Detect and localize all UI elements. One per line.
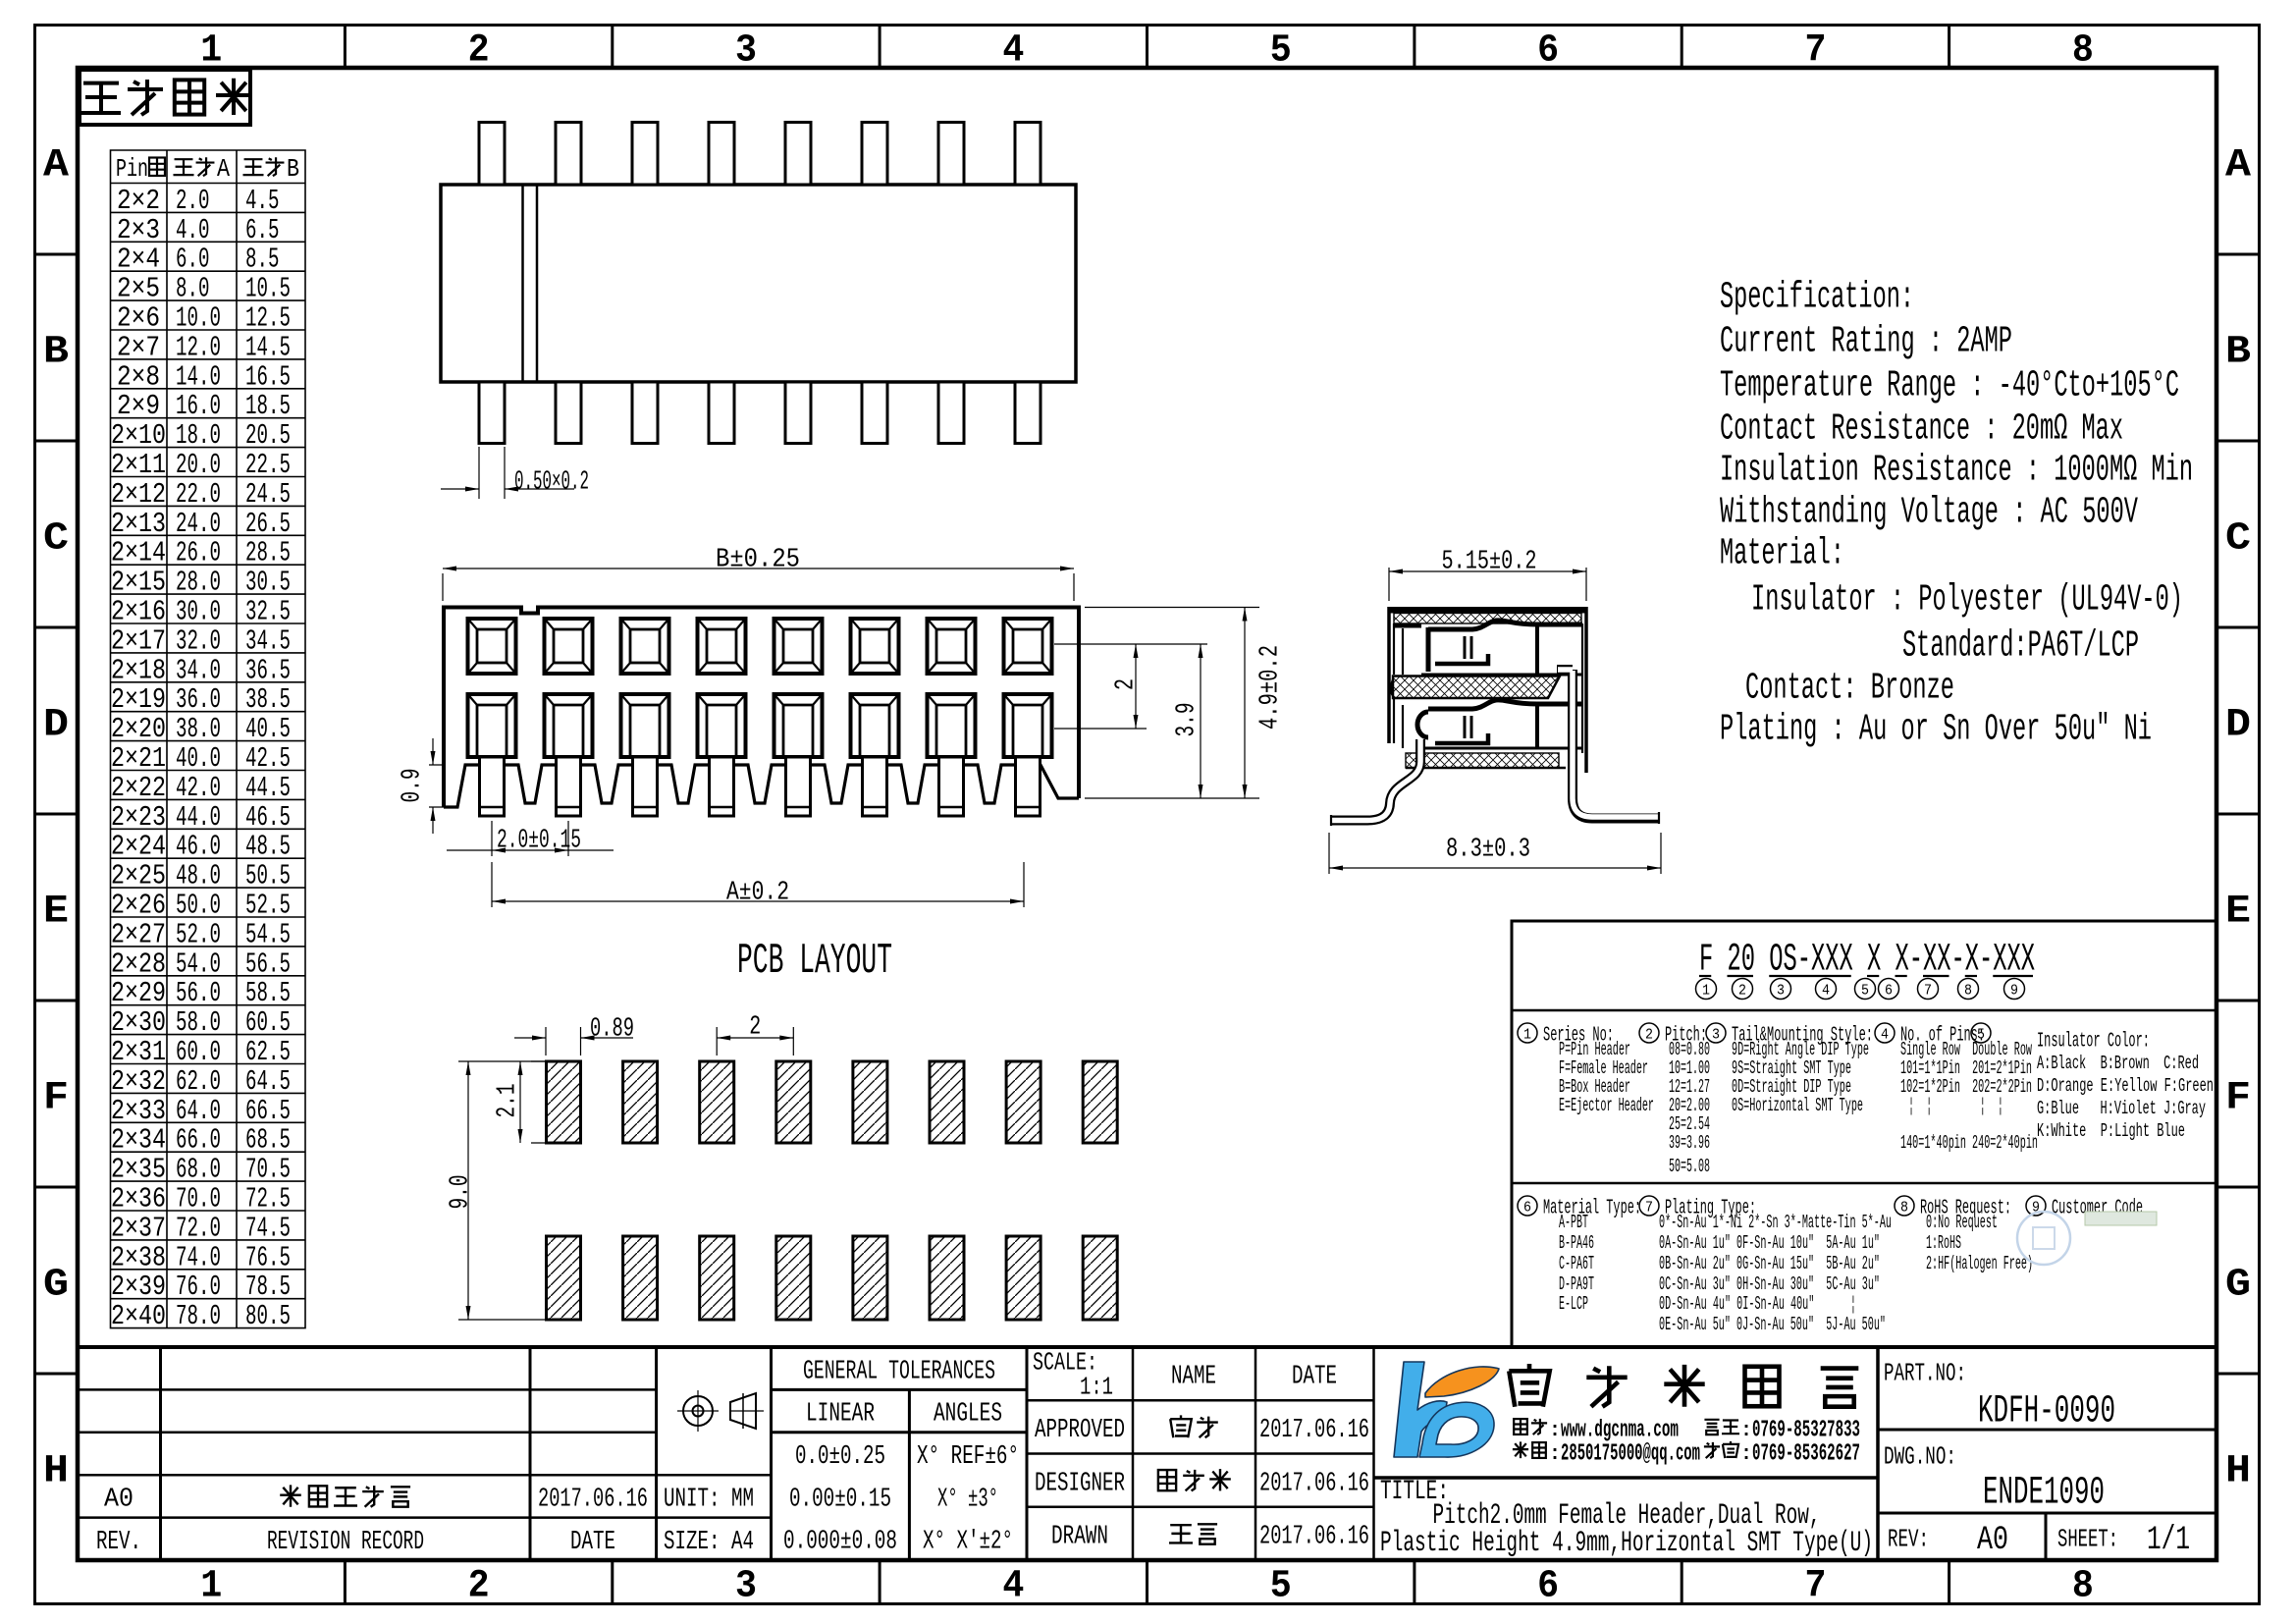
svg-text:2×31: 2×31 <box>111 1036 166 1068</box>
svg-text:Contact Resistance : 20mΩ Max: Contact Resistance : 20mΩ Max <box>1720 408 2123 451</box>
svg-text:54.5: 54.5 <box>245 918 291 950</box>
svg-text:1/1: 1/1 <box>2147 1522 2190 1559</box>
svg-text:ANGLES: ANGLES <box>934 1400 1002 1430</box>
svg-text:2017.06.16: 2017.06.16 <box>1259 1416 1369 1445</box>
svg-text:44.0: 44.0 <box>176 801 221 834</box>
svg-text:C-PA6T: C-PA6T <box>1559 1253 1594 1274</box>
svg-text:1: 1 <box>1702 982 1710 999</box>
svg-text:E=Ejector Header: E=Ejector Header <box>1559 1095 1654 1116</box>
svg-text:6: 6 <box>1537 1564 1559 1608</box>
svg-text:8: 8 <box>1964 982 1972 999</box>
svg-text:2×5: 2×5 <box>117 273 160 305</box>
svg-text:2850175000@qq.com: 2850175000@qq.com <box>1561 1441 1700 1468</box>
svg-text:2×20: 2×20 <box>111 713 166 745</box>
svg-text:E: E <box>2225 890 2251 934</box>
svg-text:76.0: 76.0 <box>176 1271 221 1303</box>
svg-text:Contact: Bronze: Contact: Bronze <box>1745 668 1954 710</box>
svg-text:28.5: 28.5 <box>245 537 291 569</box>
svg-text:18.0: 18.0 <box>176 419 221 452</box>
svg-text:KDFH-0090: KDFH-0090 <box>1978 1389 2115 1434</box>
svg-text:A: A <box>2225 143 2251 188</box>
svg-text:2017.06.16: 2017.06.16 <box>538 1486 648 1515</box>
svg-text:0.00±0.15: 0.00±0.15 <box>789 1486 891 1515</box>
svg-text:64.0: 64.0 <box>176 1095 221 1127</box>
svg-text:22.5: 22.5 <box>245 449 291 481</box>
svg-text:72.5: 72.5 <box>245 1182 291 1215</box>
svg-text:30.0: 30.0 <box>176 595 221 627</box>
svg-text:44.5: 44.5 <box>245 772 291 804</box>
svg-text:5: 5 <box>1861 982 1869 999</box>
svg-text:24.0: 24.0 <box>176 508 221 540</box>
svg-text:DATE: DATE <box>570 1528 615 1557</box>
svg-text:36.0: 36.0 <box>176 683 221 716</box>
svg-text:Specification:: Specification: <box>1720 277 1914 319</box>
svg-text:ENDE1090: ENDE1090 <box>1983 1471 2105 1515</box>
svg-text:7: 7 <box>1645 1199 1653 1216</box>
svg-text:2×6: 2×6 <box>117 301 160 334</box>
svg-text:8: 8 <box>2072 1564 2094 1608</box>
svg-text:0.9: 0.9 <box>399 769 428 803</box>
svg-text::: : <box>1549 1443 1561 1466</box>
svg-text:8: 8 <box>1900 1199 1908 1216</box>
svg-text:X° X'±2°: X° X'±2° <box>923 1528 1013 1557</box>
svg-text:66.0: 66.0 <box>176 1124 221 1157</box>
svg-text:2×17: 2×17 <box>111 624 166 657</box>
svg-text:www.dgcnma.com: www.dgcnma.com <box>1561 1418 1679 1444</box>
svg-text:34.5: 34.5 <box>245 624 291 657</box>
svg-text:NAME: NAME <box>1171 1363 1216 1392</box>
svg-text:G:Blue H:Violet J:Gray: G:Blue H:Violet J:Gray <box>2037 1098 2206 1119</box>
svg-text:30.5: 30.5 <box>245 567 291 599</box>
svg-text:3: 3 <box>1777 982 1785 999</box>
svg-text:24.5: 24.5 <box>245 478 291 511</box>
svg-text:LINEAR: LINEAR <box>806 1400 875 1430</box>
svg-text:Insulator Color:: Insulator Color: <box>2037 1031 2150 1054</box>
svg-text:G: G <box>43 1263 69 1307</box>
svg-text:20.0: 20.0 <box>176 449 221 481</box>
svg-text:50.0: 50.0 <box>176 889 221 921</box>
svg-text:Insulation Resistance : 1000MΩ: Insulation Resistance : 1000MΩ Min <box>1720 450 2193 492</box>
svg-text:2×12: 2×12 <box>111 478 166 511</box>
svg-text:14.0: 14.0 <box>176 360 221 393</box>
svg-text:26.0: 26.0 <box>176 537 221 569</box>
svg-text:4.5: 4.5 <box>245 185 280 217</box>
svg-text:Insulator : Polyester (UL94V-0: Insulator : Polyester (UL94V-0) <box>1751 579 2183 622</box>
svg-text:0B-Sn-Au 2u" 0G-Sn-Au 15u" 5B: 0B-Sn-Au 2u" 0G-Sn-Au 15u" 5B-Au 2u" <box>1659 1253 1880 1274</box>
svg-text:16.5: 16.5 <box>245 360 291 393</box>
svg-text::: : <box>1740 1443 1752 1466</box>
svg-text:Pin: Pin <box>116 154 148 184</box>
svg-text:18.5: 18.5 <box>245 390 291 422</box>
svg-text:2017.06.16: 2017.06.16 <box>1259 1469 1369 1498</box>
svg-text:0769-85362627: 0769-85362627 <box>1752 1441 1860 1468</box>
svg-text:56.5: 56.5 <box>245 947 291 980</box>
svg-text:REVISION RECORD: REVISION RECORD <box>267 1528 424 1557</box>
svg-text:140=1*40pin 240=2*40pin: 140=1*40pin 240=2*40pin <box>1900 1132 2038 1154</box>
svg-text:0S=Horizontal SMT Type: 0S=Horizontal SMT Type <box>1732 1095 1863 1116</box>
svg-text:0769-85327833: 0769-85327833 <box>1752 1418 1860 1444</box>
svg-text:2×38: 2×38 <box>111 1241 166 1273</box>
svg-text:2×15: 2×15 <box>111 567 166 599</box>
svg-text:6: 6 <box>1523 1199 1531 1216</box>
svg-text:4: 4 <box>1881 1026 1889 1043</box>
svg-text:60.0: 60.0 <box>176 1036 221 1068</box>
svg-text:B: B <box>2225 330 2251 374</box>
svg-text:78.0: 78.0 <box>176 1300 221 1332</box>
svg-text:78.5: 78.5 <box>245 1271 291 1303</box>
svg-text:16.0: 16.0 <box>176 390 221 422</box>
svg-text:68.0: 68.0 <box>176 1154 221 1186</box>
svg-text:0.50×0.2: 0.50×0.2 <box>514 468 589 498</box>
svg-text:DWG.NO:: DWG.NO: <box>1884 1441 1956 1471</box>
svg-text:2×40: 2×40 <box>111 1300 166 1332</box>
svg-text:42.0: 42.0 <box>176 772 221 804</box>
svg-text:1:1: 1:1 <box>1080 1372 1113 1401</box>
svg-text:50=5.08: 50=5.08 <box>1669 1156 1710 1177</box>
svg-text:32.0: 32.0 <box>176 624 221 657</box>
svg-text:B-PA46: B-PA46 <box>1559 1232 1594 1254</box>
svg-text:Current Rating : 2AMP: Current Rating : 2AMP <box>1720 321 2012 363</box>
svg-text:Plastic Height 4.9mm,Horizonta: Plastic Height 4.9mm,Horizontal SMT Type… <box>1380 1527 1873 1560</box>
svg-text:7: 7 <box>1804 1564 1826 1608</box>
svg-text:E-LCP: E-LCP <box>1559 1293 1588 1315</box>
svg-text:H: H <box>2225 1449 2251 1493</box>
svg-text:58.0: 58.0 <box>176 1006 221 1039</box>
svg-text:46.0: 46.0 <box>176 831 221 863</box>
svg-text:20.5: 20.5 <box>245 419 291 452</box>
svg-text:54.0: 54.0 <box>176 947 221 980</box>
svg-text:0C-Sn-Au 3u" 0H-Sn-Au 30u" 5C: 0C-Sn-Au 3u" 0H-Sn-Au 30u" 5C-Au 3u" <box>1659 1273 1880 1295</box>
svg-text:F: F <box>43 1076 69 1120</box>
svg-text:6.0: 6.0 <box>176 244 210 276</box>
svg-text::: : <box>1740 1420 1752 1442</box>
svg-text:28.0: 28.0 <box>176 567 221 599</box>
svg-text:0E-Sn-Au 5u" 0J-Sn-Au 50u" 5J: 0E-Sn-Au 5u" 0J-Sn-Au 50u" 5J-Au 50u" <box>1659 1314 1886 1335</box>
svg-text:2×33: 2×33 <box>111 1095 166 1127</box>
svg-text:2×2: 2×2 <box>117 185 160 217</box>
svg-text:C: C <box>43 516 69 561</box>
svg-text:2×11: 2×11 <box>111 449 166 481</box>
svg-text:80.5: 80.5 <box>245 1300 291 1332</box>
svg-text:2: 2 <box>1645 1026 1653 1043</box>
svg-text:58.5: 58.5 <box>245 977 291 1009</box>
svg-text:0.000±0.08: 0.000±0.08 <box>783 1528 897 1557</box>
svg-text:2×34: 2×34 <box>111 1124 166 1157</box>
svg-text:1: 1 <box>200 1564 222 1608</box>
svg-text:48.0: 48.0 <box>176 860 221 893</box>
svg-text:2: 2 <box>749 1013 761 1043</box>
svg-text:32.5: 32.5 <box>245 595 291 627</box>
svg-text:76.5: 76.5 <box>245 1241 291 1273</box>
svg-text:42.5: 42.5 <box>245 742 291 775</box>
svg-text:PCB LAYOUT: PCB LAYOUT <box>737 937 892 986</box>
svg-text:12.0: 12.0 <box>176 331 221 363</box>
svg-text:9: 9 <box>2010 982 2018 999</box>
svg-text:2017.06.16: 2017.06.16 <box>1259 1523 1369 1552</box>
svg-text:2×30: 2×30 <box>111 1006 166 1039</box>
svg-text:0D-Sn-Au 4u" 0I-Sn-Au 40u": 0D-Sn-Au 4u" 0I-Sn-Au 40u" ¦ <box>1659 1293 1856 1315</box>
svg-text:7: 7 <box>1804 28 1826 73</box>
svg-text:8.5: 8.5 <box>245 244 280 276</box>
svg-text:4: 4 <box>1822 982 1830 999</box>
svg-text:SHEET:: SHEET: <box>2057 1524 2118 1553</box>
svg-text:2×37: 2×37 <box>111 1212 166 1244</box>
svg-text:D: D <box>2225 703 2251 747</box>
svg-text:2.0±0.15: 2.0±0.15 <box>497 827 581 856</box>
svg-text:2×9: 2×9 <box>117 390 160 422</box>
svg-text:46.5: 46.5 <box>245 801 291 834</box>
svg-text:D:Orange E:Yellow F:Green: D:Orange E:Yellow F:Green <box>2037 1075 2214 1097</box>
svg-text:A0: A0 <box>1977 1522 2008 1559</box>
svg-text:74.0: 74.0 <box>176 1241 221 1273</box>
svg-text:¦ ¦ ¦ ¦: ¦ ¦ ¦ ¦ <box>1908 1095 2003 1116</box>
svg-text:2×10: 2×10 <box>111 419 166 452</box>
svg-text:2×3: 2×3 <box>117 214 160 246</box>
svg-text:H: H <box>43 1449 69 1493</box>
svg-text:X° ±3°: X° ±3° <box>937 1486 998 1515</box>
svg-text:14.5: 14.5 <box>245 331 291 363</box>
svg-text:3: 3 <box>735 1564 757 1608</box>
svg-text:50.5: 50.5 <box>245 860 291 893</box>
svg-text:K:White P:Light Blue: K:White P:Light Blue <box>2037 1120 2185 1142</box>
svg-text:Withstanding Voltage : AC 500V: Withstanding Voltage : AC 500V <box>1720 492 2138 534</box>
svg-text:3: 3 <box>735 28 757 73</box>
svg-text:8.3±0.3: 8.3±0.3 <box>1446 836 1530 865</box>
svg-text:2×29: 2×29 <box>111 977 166 1009</box>
svg-text:4: 4 <box>1002 1564 1024 1608</box>
svg-text:48.5: 48.5 <box>245 831 291 863</box>
svg-text:68.5: 68.5 <box>245 1124 291 1157</box>
svg-text:2×16: 2×16 <box>111 595 166 627</box>
svg-text:52.0: 52.0 <box>176 918 221 950</box>
svg-text:F: F <box>2225 1076 2251 1120</box>
svg-text:0*-Sn-Au 1*-Ni 2*-Sn 3*-Matte-: 0*-Sn-Au 1*-Ni 2*-Sn 3*-Matte-Tin 5*-Au <box>1659 1212 1892 1233</box>
svg-text:12.5: 12.5 <box>245 301 291 334</box>
svg-text:5: 5 <box>1977 1026 1985 1043</box>
svg-text:22.0: 22.0 <box>176 478 221 511</box>
svg-text:2×39: 2×39 <box>111 1271 166 1303</box>
svg-text:2×19: 2×19 <box>111 683 166 716</box>
svg-text:Plating : Au or Sn Over 50u" N: Plating : Au or Sn Over 50u" Ni <box>1720 709 2152 751</box>
svg-text:A-PBT: A-PBT <box>1559 1212 1588 1233</box>
svg-text:62.0: 62.0 <box>176 1065 221 1098</box>
svg-text:72.0: 72.0 <box>176 1212 221 1244</box>
svg-text:0.89: 0.89 <box>590 1015 634 1045</box>
svg-text:2.0: 2.0 <box>176 185 210 217</box>
svg-text:2×8: 2×8 <box>117 360 160 393</box>
svg-text:2×14: 2×14 <box>111 537 166 569</box>
svg-text:2×27: 2×27 <box>111 918 166 950</box>
svg-text:64.5: 64.5 <box>245 1065 291 1098</box>
svg-text:26.5: 26.5 <box>245 508 291 540</box>
svg-text:1: 1 <box>1523 1026 1531 1043</box>
svg-text:DRAWN: DRAWN <box>1051 1523 1108 1552</box>
svg-text:5: 5 <box>1270 28 1292 73</box>
svg-text:A: A <box>217 154 230 184</box>
svg-text:2×28: 2×28 <box>111 947 166 980</box>
svg-text:2×23: 2×23 <box>111 801 166 834</box>
svg-text:UNIT: MM: UNIT: MM <box>664 1486 754 1515</box>
svg-text:40.5: 40.5 <box>245 713 291 745</box>
svg-text:4.9±0.2: 4.9±0.2 <box>1256 645 1286 730</box>
svg-text:2: 2 <box>468 28 490 73</box>
svg-text:2×32: 2×32 <box>111 1065 166 1098</box>
svg-text:2×26: 2×26 <box>111 889 166 921</box>
svg-text:2: 2 <box>1738 982 1746 999</box>
svg-text:38.5: 38.5 <box>245 683 291 716</box>
svg-text:REV:: REV: <box>1888 1524 1929 1553</box>
svg-text:1:RoHS: 1:RoHS <box>1926 1232 1961 1254</box>
svg-text:2×24: 2×24 <box>111 831 166 863</box>
svg-text:C: C <box>2225 516 2251 561</box>
svg-text:7: 7 <box>1924 982 1932 999</box>
svg-text:9.0: 9.0 <box>447 1175 476 1210</box>
svg-text:34.0: 34.0 <box>176 654 221 686</box>
svg-text:4: 4 <box>1002 28 1024 73</box>
svg-text:REV.: REV. <box>96 1528 141 1557</box>
svg-text:2×22: 2×22 <box>111 772 166 804</box>
svg-text:2×18: 2×18 <box>111 654 166 686</box>
svg-text:PART.NO:: PART.NO: <box>1884 1358 1966 1387</box>
svg-text:2×36: 2×36 <box>111 1182 166 1215</box>
svg-text:3.9: 3.9 <box>1173 703 1202 737</box>
svg-text:SIZE: A4: SIZE: A4 <box>664 1528 754 1557</box>
svg-text:6: 6 <box>1537 28 1559 73</box>
svg-text:2: 2 <box>1112 678 1142 690</box>
svg-text:5.15±0.2: 5.15±0.2 <box>1442 548 1537 577</box>
svg-text:56.0: 56.0 <box>176 977 221 1009</box>
svg-text:X° REF±6°: X° REF±6° <box>917 1442 1019 1472</box>
svg-text:6: 6 <box>1885 982 1893 999</box>
svg-text::: : <box>1549 1420 1561 1442</box>
svg-text:Standard:PA6T/LCP: Standard:PA6T/LCP <box>1902 625 2139 668</box>
svg-text:2×7: 2×7 <box>117 331 160 363</box>
svg-text:A±0.2: A±0.2 <box>726 879 789 908</box>
svg-text:2×13: 2×13 <box>111 508 166 540</box>
svg-text:74.5: 74.5 <box>245 1212 291 1244</box>
svg-text:B: B <box>43 330 69 374</box>
svg-text:E: E <box>43 890 69 934</box>
svg-text:8: 8 <box>2072 28 2094 73</box>
svg-text:2×21: 2×21 <box>111 742 166 775</box>
svg-text:66.5: 66.5 <box>245 1095 291 1127</box>
svg-text:Material Type:: Material Type: <box>1543 1198 1641 1220</box>
svg-text:G: G <box>2225 1263 2251 1307</box>
svg-text:D-PA9T: D-PA9T <box>1559 1273 1594 1295</box>
svg-text:2.1: 2.1 <box>494 1084 523 1118</box>
svg-text:4.0: 4.0 <box>176 214 210 246</box>
svg-text:2×25: 2×25 <box>111 860 166 893</box>
svg-text:38.0: 38.0 <box>176 713 221 745</box>
svg-text:APPROVED: APPROVED <box>1035 1416 1125 1445</box>
svg-text:8.0: 8.0 <box>176 273 210 305</box>
svg-text:0A-Sn-Au 1u" 0F-Sn-Au 10u" 5A: 0A-Sn-Au 1u" 0F-Sn-Au 10u" 5A-Au 1u" <box>1659 1232 1880 1254</box>
svg-text:39=3.96: 39=3.96 <box>1669 1132 1710 1154</box>
svg-text:DATE: DATE <box>1292 1363 1337 1392</box>
svg-text:2×35: 2×35 <box>111 1154 166 1186</box>
svg-text:70.5: 70.5 <box>245 1154 291 1186</box>
svg-text:2×4: 2×4 <box>117 244 160 276</box>
svg-text:10.5: 10.5 <box>245 273 291 305</box>
svg-text:40.0: 40.0 <box>176 742 221 775</box>
svg-text:5: 5 <box>1270 1564 1292 1608</box>
svg-text:B: B <box>287 154 299 184</box>
svg-text:6.5: 6.5 <box>245 214 280 246</box>
svg-text:36.5: 36.5 <box>245 654 291 686</box>
svg-text:A: A <box>43 143 69 188</box>
svg-text:10.0: 10.0 <box>176 301 221 334</box>
svg-text:70.0: 70.0 <box>176 1182 221 1215</box>
svg-text:2:HF(Halogen Free): 2:HF(Halogen Free) <box>1926 1253 2033 1274</box>
svg-text:52.5: 52.5 <box>245 889 291 921</box>
svg-text:DESIGNER: DESIGNER <box>1035 1469 1125 1498</box>
svg-text:B±0.25: B±0.25 <box>716 546 800 575</box>
svg-text:Material:: Material: <box>1720 533 1844 575</box>
svg-text:2: 2 <box>468 1564 490 1608</box>
svg-text:1: 1 <box>200 28 222 73</box>
svg-text:0:No Request: 0:No Request <box>1926 1212 1998 1233</box>
svg-text:D: D <box>43 703 69 747</box>
svg-text:GENERAL TOLERANCES: GENERAL TOLERANCES <box>803 1358 995 1387</box>
svg-text:62.5: 62.5 <box>245 1036 291 1068</box>
svg-text:A:Black B:Brown C:Red: A:Black B:Brown C:Red <box>2037 1053 2199 1074</box>
svg-text:0.0±0.25: 0.0±0.25 <box>795 1442 885 1472</box>
svg-text:A0: A0 <box>104 1486 133 1515</box>
svg-text:60.5: 60.5 <box>245 1006 291 1039</box>
svg-text:3: 3 <box>1712 1026 1720 1043</box>
svg-text:Temperature Range : -40°Cto+10: Temperature Range : -40°Cto+105°C <box>1720 365 2179 407</box>
